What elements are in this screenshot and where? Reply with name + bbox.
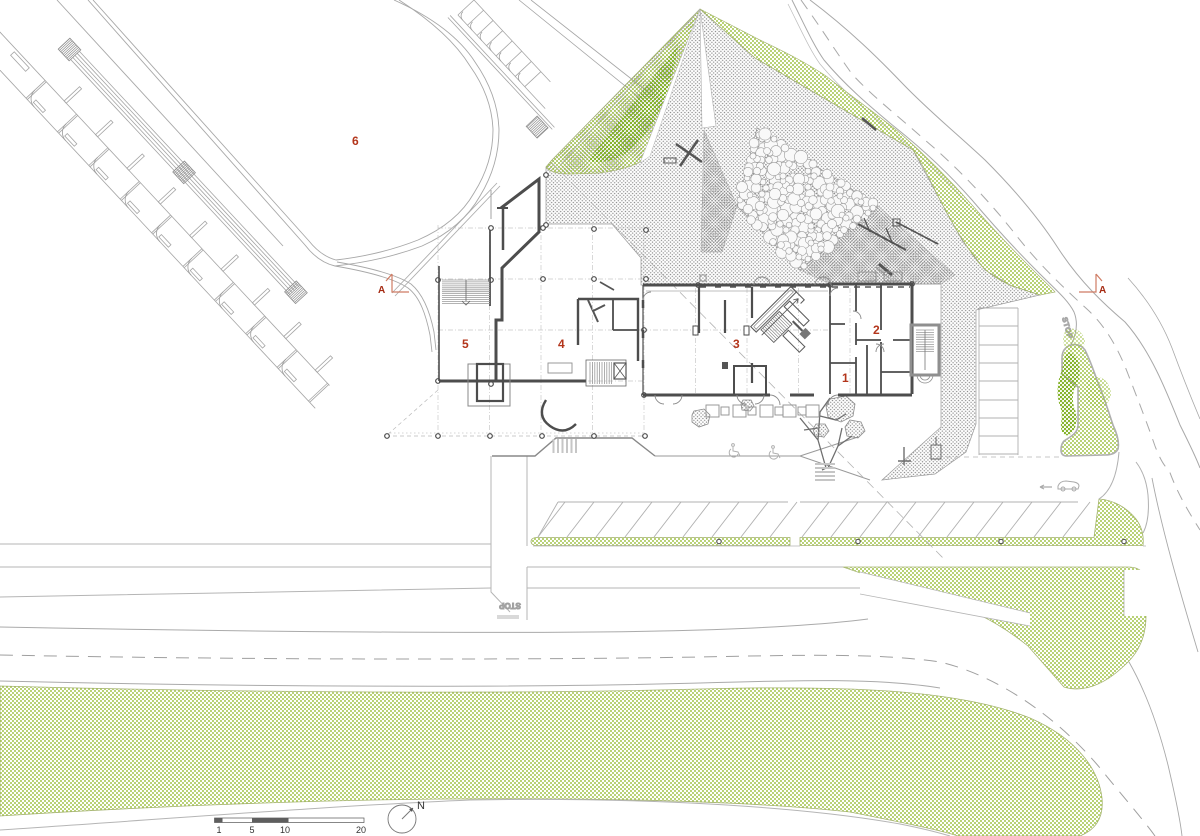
svg-text:4: 4 [558,337,565,351]
svg-text:6: 6 [352,134,359,148]
svg-text:10: 10 [280,825,290,835]
svg-text:2: 2 [873,323,880,337]
svg-text:1: 1 [842,371,849,385]
svg-text:A: A [378,285,385,296]
svg-text:3: 3 [733,337,740,351]
svg-text:5: 5 [249,825,254,835]
svg-text:5: 5 [462,337,469,351]
svg-text:A: A [1099,285,1106,296]
svg-text:N: N [417,800,425,812]
svg-text:20: 20 [356,825,366,835]
svg-text:1: 1 [216,825,221,835]
svg-text:STOP: STOP [499,601,521,610]
